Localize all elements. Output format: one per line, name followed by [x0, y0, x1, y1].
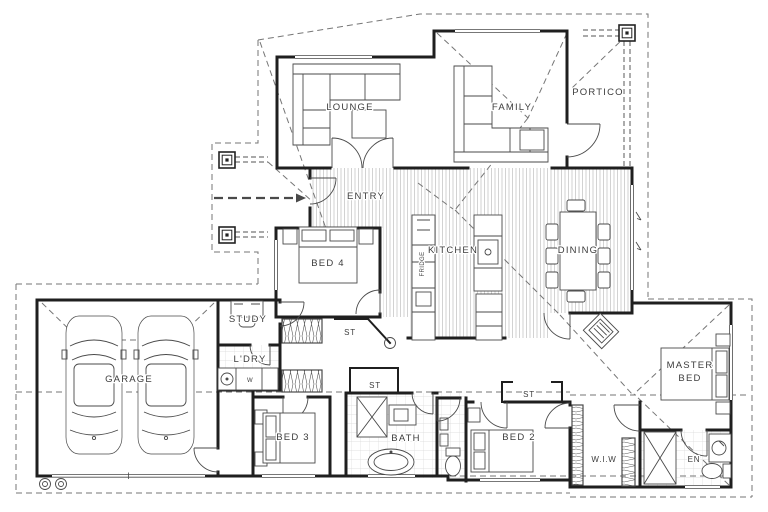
label-bed3: BED 3	[276, 432, 309, 443]
kitchen-island	[474, 215, 502, 340]
label-ensuite: EN	[688, 455, 701, 464]
garage-door	[52, 472, 205, 480]
bed4-bed	[283, 227, 373, 283]
label-garage: GARAGE	[105, 374, 153, 385]
label-master-bed-line1: MASTER	[667, 360, 714, 371]
label-washer: W	[247, 378, 253, 384]
label-dining: DINING	[558, 245, 598, 256]
label-fridge: FRIDGE	[420, 251, 426, 276]
floor-plan-canvas: LOUNGE FAMILY PORTICO ENTRY KITCHEN DINI…	[0, 0, 768, 512]
label-master-bed-line2: BED	[678, 373, 701, 384]
label-bath: BATH	[391, 433, 420, 444]
label-lounge: LOUNGE	[326, 102, 373, 113]
label-family: FAMILY	[492, 102, 532, 113]
fireplace	[583, 313, 618, 348]
label-st-bath: ST	[369, 381, 381, 390]
label-bed2: BED 2	[502, 432, 535, 443]
label-wiw: W.I.W	[591, 455, 616, 464]
label-st-bed2: ST	[523, 390, 535, 399]
family-sofa	[454, 66, 548, 162]
label-study: STUDY	[229, 314, 267, 325]
label-portico: PORTICO	[572, 87, 624, 98]
label-entry: ENTRY	[347, 191, 385, 202]
label-bed4: BED 4	[311, 258, 344, 269]
label-laundry: L'DRY	[234, 354, 267, 365]
portico-column	[619, 25, 635, 41]
label-kitchen: KITCHEN	[428, 245, 478, 256]
label-st-hall: ST	[344, 328, 356, 337]
eave-tick-marks	[636, 212, 641, 250]
floor-plan-page: LOUNGE FAMILY PORTICO ENTRY KITCHEN DINI…	[0, 0, 768, 512]
entry-axis-line	[214, 194, 306, 203]
downpipes	[40, 479, 67, 490]
garage-cars	[62, 316, 198, 454]
